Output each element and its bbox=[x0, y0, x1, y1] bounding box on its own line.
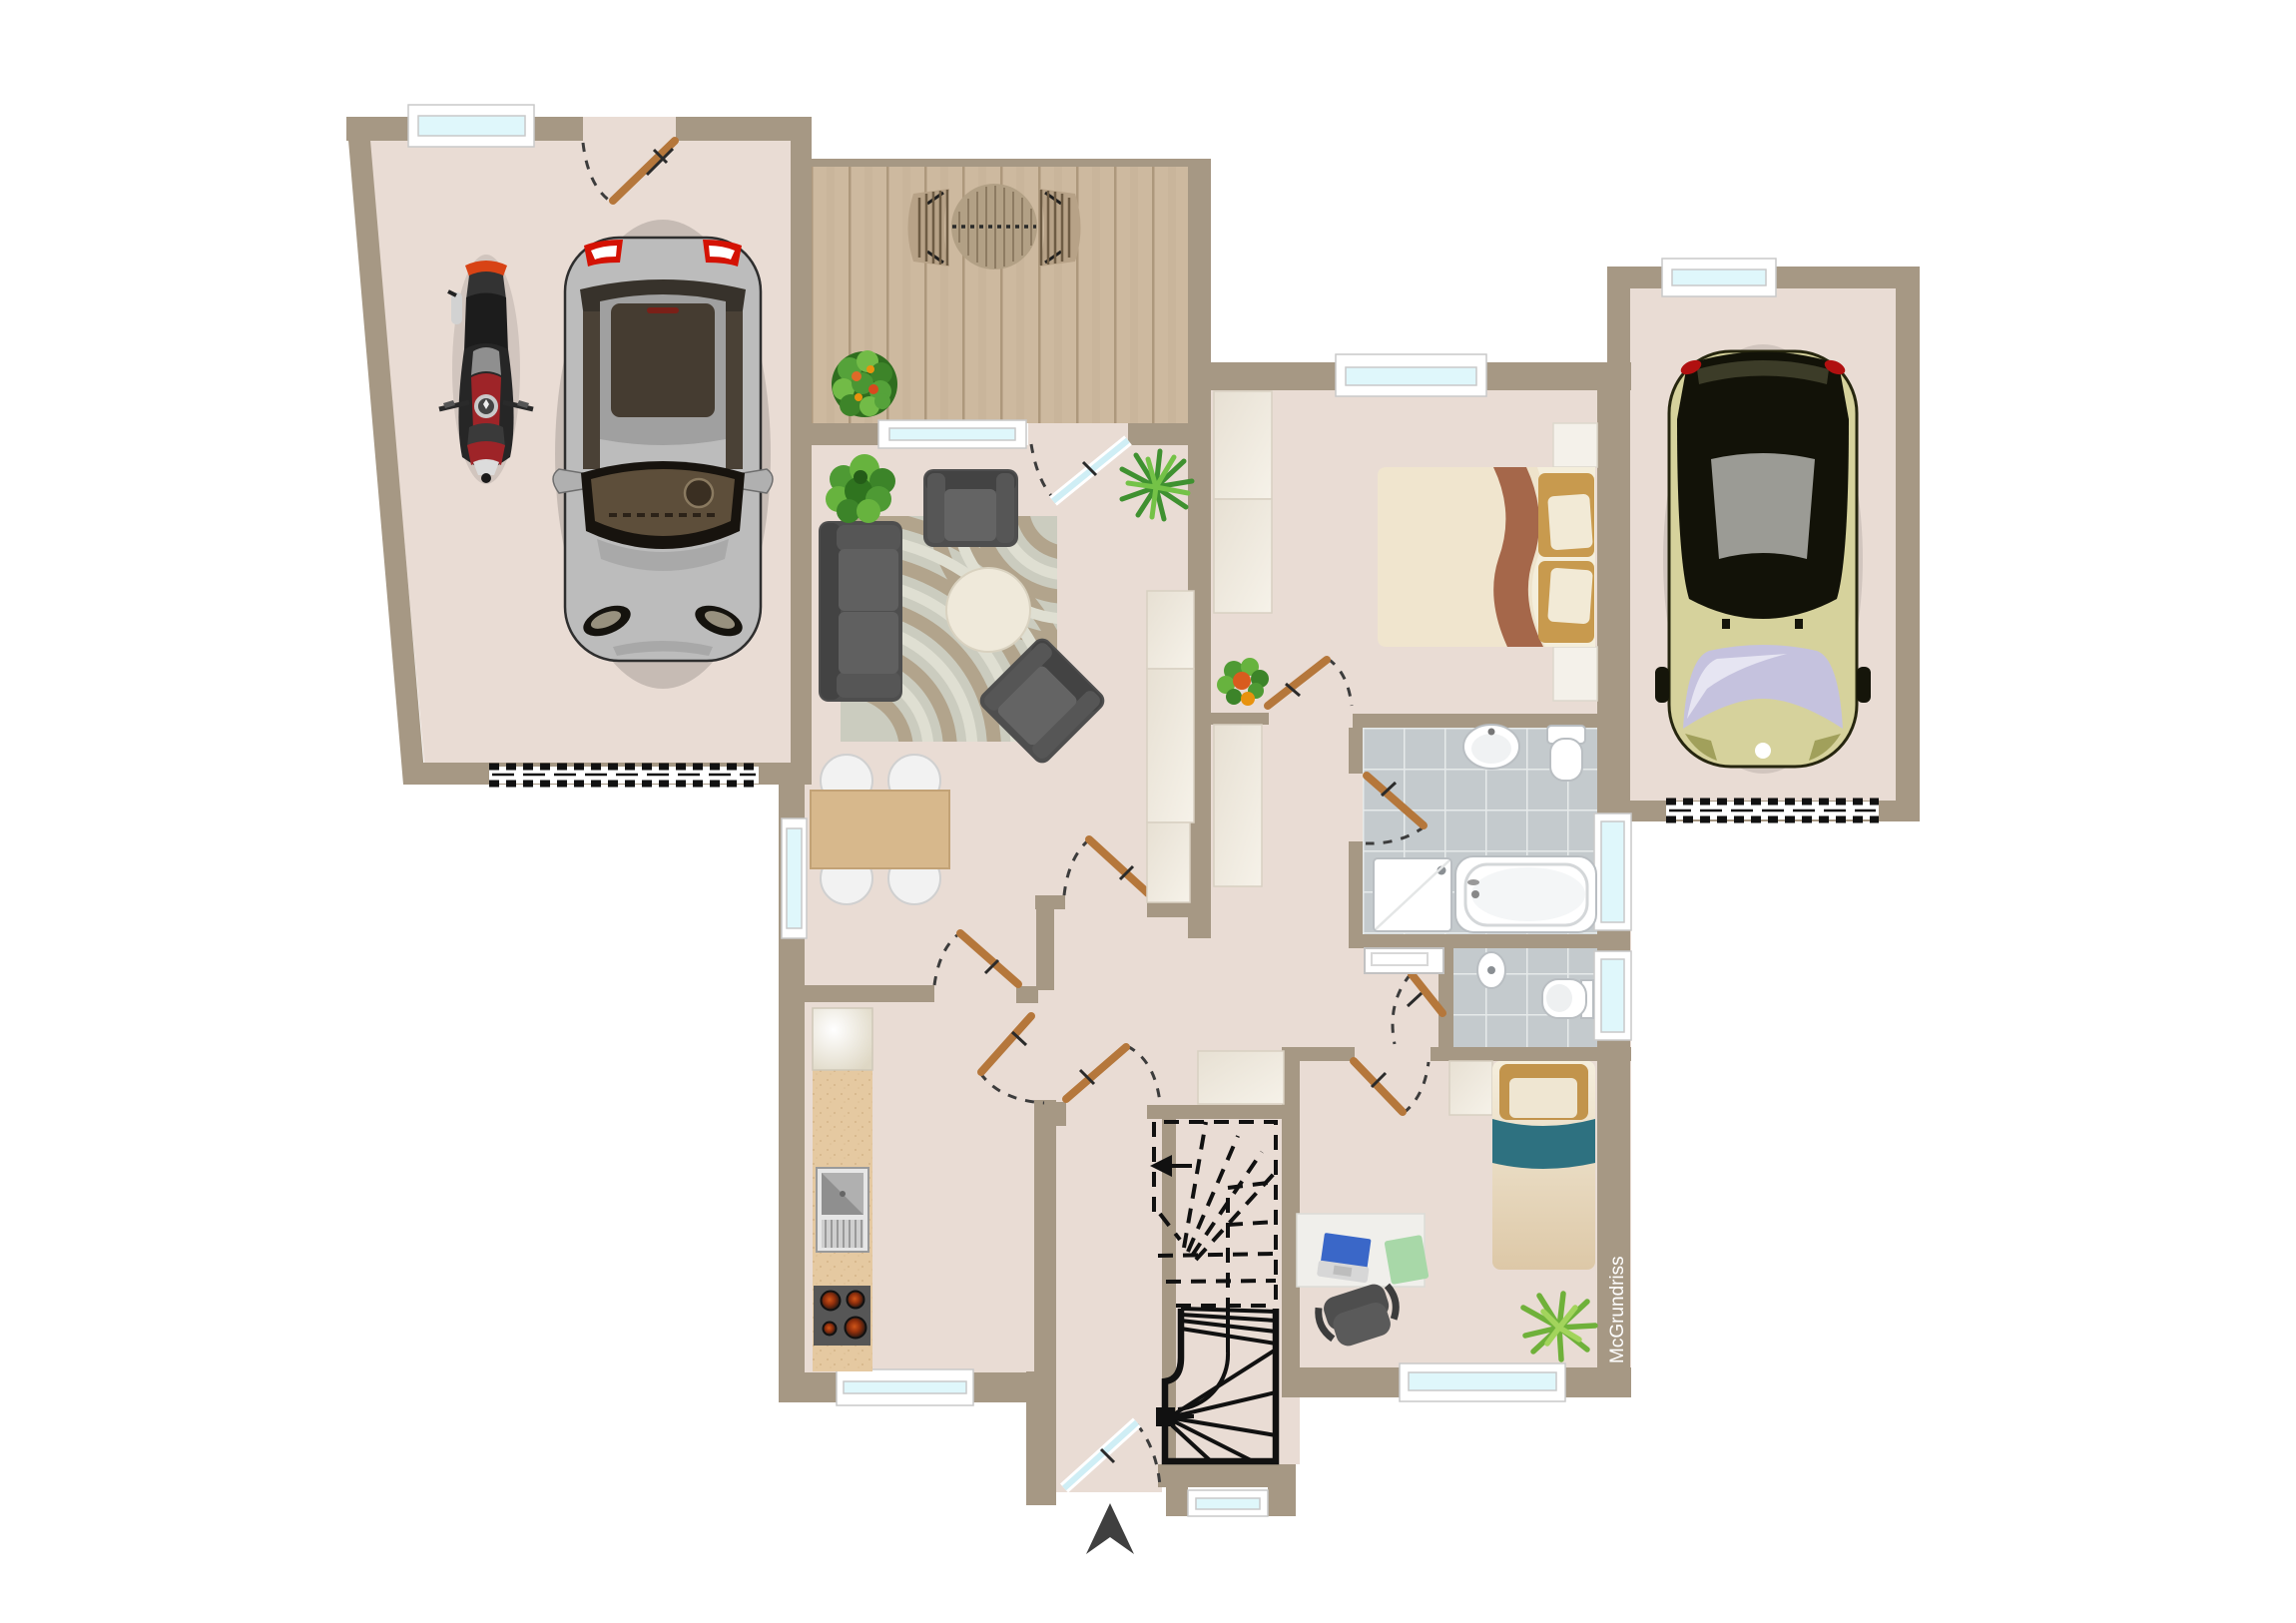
svg-text:McGrundriss: McGrundriss bbox=[1607, 1256, 1628, 1363]
